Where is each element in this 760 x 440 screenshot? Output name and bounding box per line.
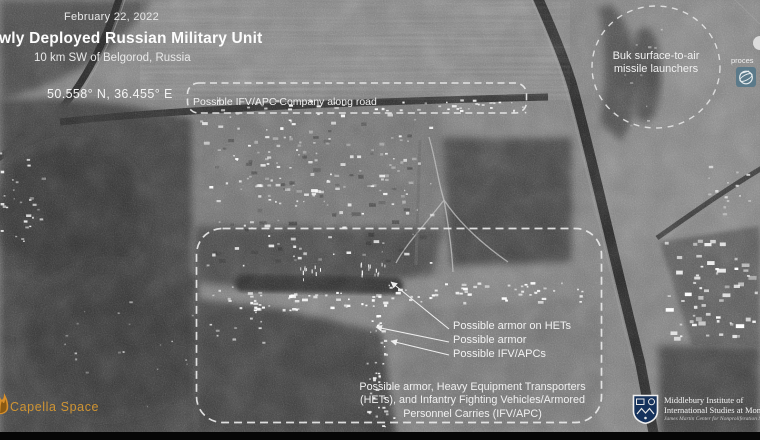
- caption-line2: (HETs), and Infantry Fighting Vehicles/A…: [330, 394, 615, 407]
- institute-center-line: James Martin Center for Nonproliferation…: [664, 416, 760, 422]
- pointer-label-armor-on-hets: Possible armor on HETs: [453, 320, 571, 332]
- corner-partial-circle-logo: [753, 36, 760, 50]
- buk-label-line1: Buk surface-to-air: [613, 50, 700, 62]
- processor-globe-icon: [736, 67, 756, 87]
- caption-line3: Personnel Carries (IFV/APC): [330, 408, 615, 421]
- ifv-apcs-arrow: [391, 341, 449, 355]
- coordinates-label: 50.558° N, 36.455° E: [47, 87, 173, 101]
- processor-logo: [736, 67, 756, 87]
- armor-arrow: [376, 327, 449, 342]
- road-company-label: Possible IFV/APC Company along road: [193, 96, 377, 108]
- location-subtitle: 10 km SW of Belgorod, Russia: [34, 52, 191, 64]
- middlebury-shield-icon: [632, 394, 659, 424]
- annotated-sar-satellite-image: February 22, 2022 wly Deployed Russian M…: [0, 0, 760, 440]
- image-date: February 22, 2022: [64, 11, 159, 23]
- pointer-label-ifv-apcs: Possible IFV/APCs: [453, 348, 546, 360]
- pointer-label-armor: Possible armor: [453, 334, 526, 346]
- caption-line1: Possible armor, Heavy Equipment Transpor…: [330, 381, 615, 394]
- buk-launchers-label: Buk surface-to-air missile launchers: [592, 50, 720, 75]
- page-title: wly Deployed Russian Military Unit: [0, 30, 262, 48]
- capella-space-wordmark: Capella Space: [10, 400, 99, 414]
- armor-on-hets-arrow: [391, 282, 449, 329]
- institute-name-line2: International Studies at Mon: [664, 405, 760, 415]
- processed-by-label: proces: [731, 56, 754, 65]
- bottom-black-bar: [0, 432, 760, 440]
- institute-name-line1: Middlebury Institute of: [664, 395, 743, 405]
- buk-label-line2: missile launchers: [614, 63, 698, 75]
- armor-group-caption: Possible armor, Heavy Equipment Transpor…: [330, 381, 615, 421]
